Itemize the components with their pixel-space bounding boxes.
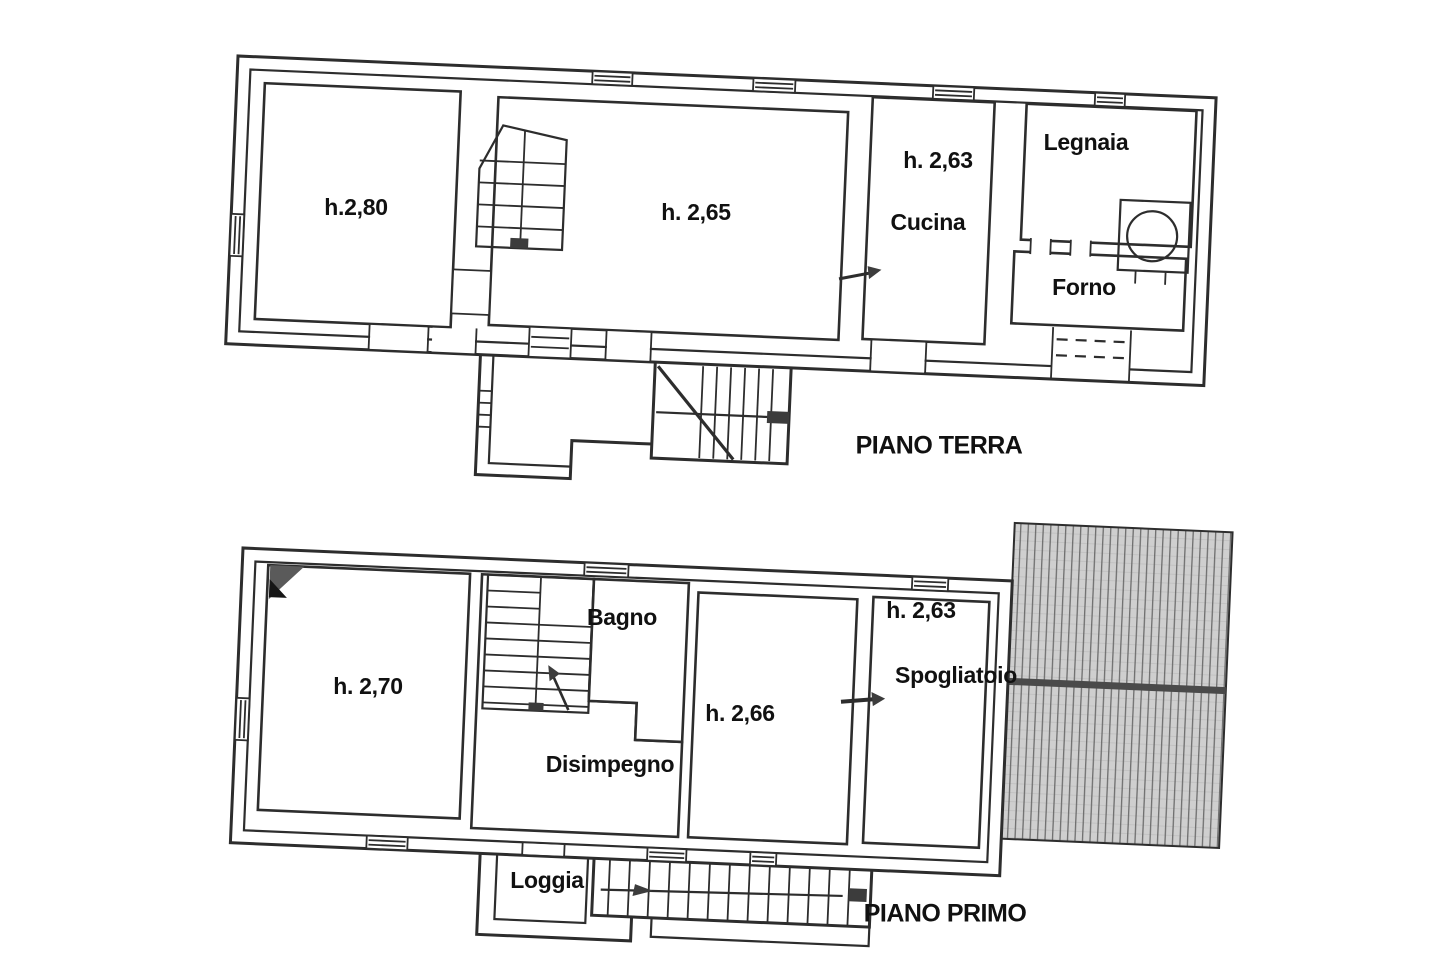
window-icon xyxy=(912,577,949,592)
label-bagno: Bagno xyxy=(587,604,657,630)
label-loggia: Loggia xyxy=(510,867,584,893)
door-opening xyxy=(451,269,491,315)
window-icon xyxy=(933,86,975,101)
label-h266: h. 2,66 xyxy=(705,700,775,726)
window-icon xyxy=(229,214,244,257)
label-h270: h. 2,70 xyxy=(333,673,403,699)
gf-porch-outline xyxy=(475,355,655,482)
window-icon xyxy=(235,698,250,741)
window-icon xyxy=(584,563,629,578)
dashed-opening xyxy=(1051,327,1131,382)
door-opening xyxy=(605,330,651,362)
room-legnaia xyxy=(1021,104,1197,247)
door-opening xyxy=(870,339,926,373)
window-icon xyxy=(750,852,777,866)
external-stair-icon xyxy=(651,362,791,464)
label-forno: Forno xyxy=(1052,274,1116,300)
label-legnaia: Legnaia xyxy=(1044,129,1129,155)
floor-label-piano-terra: PIANO TERRA xyxy=(856,432,1023,460)
window-icon xyxy=(592,71,633,86)
door-opening xyxy=(369,324,429,352)
floor-plan-canvas: h.2,80 h. 2,65 h. 2,63 Cucina Legnaia Fo… xyxy=(0,0,1440,960)
label-cucina-height: h. 2,63 xyxy=(903,147,973,173)
roof-hatch xyxy=(1001,523,1232,848)
door-opening xyxy=(432,327,477,355)
window-icon xyxy=(528,327,571,359)
room-spogliatoio xyxy=(863,597,989,848)
window-icon xyxy=(647,848,687,863)
label-spogliatoio-height: h. 2,63 xyxy=(886,597,956,623)
floor-label-piano-primo: PIANO PRIMO xyxy=(864,900,1027,928)
window-icon xyxy=(366,836,408,851)
label-spogliatoio: Spogliatoio xyxy=(895,662,1017,688)
window-icon xyxy=(1095,93,1126,107)
label-disimpegno: Disimpegno xyxy=(546,751,675,777)
label-h265: h. 2,65 xyxy=(661,199,731,225)
window-icon xyxy=(753,78,796,93)
label-cucina: Cucina xyxy=(891,209,966,235)
label-h280: h.2,80 xyxy=(324,194,387,220)
